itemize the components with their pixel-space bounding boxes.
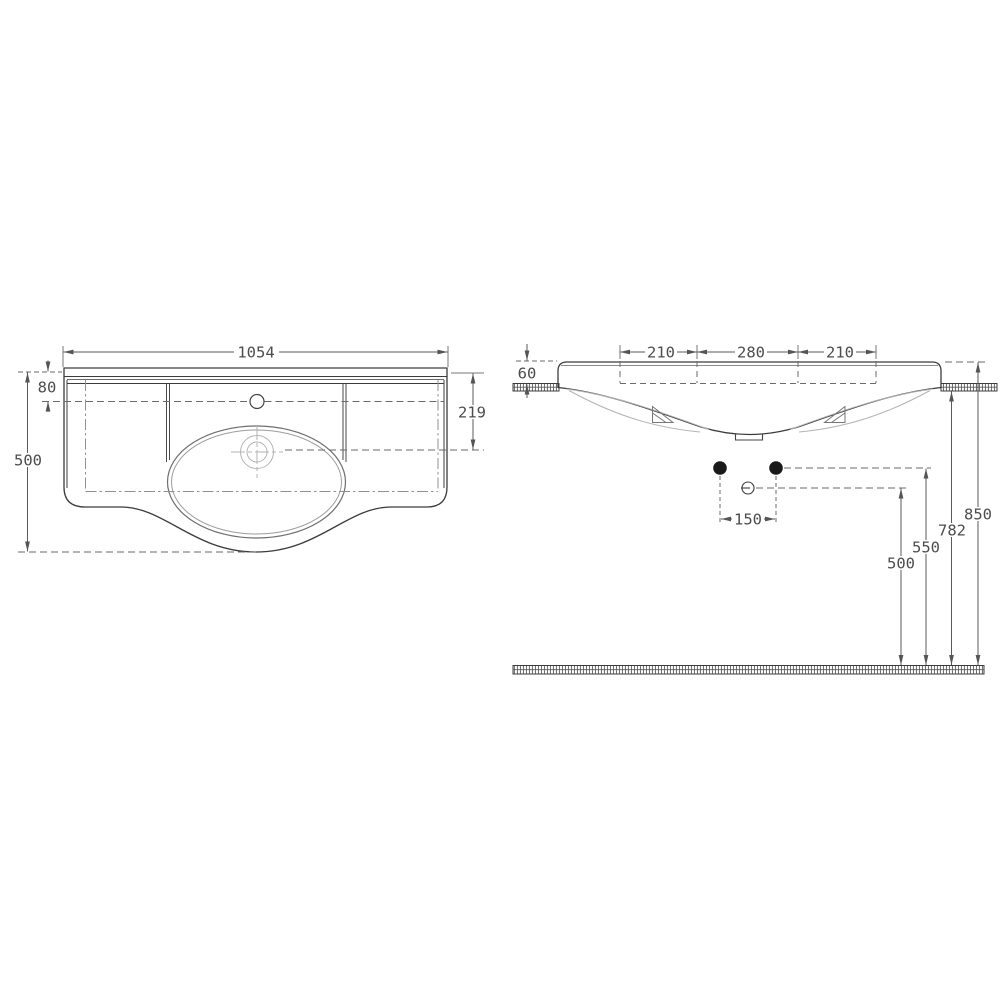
dim-label-210-right: 210 bbox=[826, 344, 854, 362]
dim-label-280: 280 bbox=[737, 344, 765, 362]
fixing-hole-left bbox=[713, 461, 727, 475]
plan-view: 1054 80 500 219 bbox=[12, 344, 489, 553]
dim-label-500-depth: 500 bbox=[14, 452, 42, 470]
dim-top-spans: 210 280 210 bbox=[620, 344, 876, 384]
dim-label-219: 219 bbox=[458, 404, 486, 422]
dim-height-top: 850 bbox=[962, 363, 994, 666]
basin-body-outline bbox=[64, 368, 447, 552]
mounting-bracket-left bbox=[653, 407, 674, 423]
dim-label-850: 850 bbox=[964, 506, 992, 524]
dim-label-1054: 1054 bbox=[237, 344, 274, 362]
dim-height-underside: 782 bbox=[936, 392, 968, 666]
dim-hole-spacing: 150 bbox=[720, 476, 776, 529]
bowl-ellipse-outer bbox=[168, 426, 346, 538]
dim-overall-depth: 500 bbox=[12, 373, 257, 553]
dim-label-60: 60 bbox=[518, 365, 537, 383]
wall-section-left bbox=[513, 384, 559, 392]
washbasin-technical-drawing: 1054 80 500 219 bbox=[0, 0, 1000, 1000]
bowl-profile bbox=[558, 388, 941, 435]
bowl-inner-curves bbox=[566, 389, 933, 432]
waste-hole-symbol bbox=[741, 482, 754, 494]
height-reference-dashes bbox=[756, 362, 985, 488]
dim-bowl-centre: 219 bbox=[451, 373, 489, 450]
dim-label-210-left: 210 bbox=[647, 344, 675, 362]
wall-section-right bbox=[941, 384, 997, 392]
dim-height-waste: 500 bbox=[885, 489, 917, 666]
dim-label-80: 80 bbox=[38, 379, 57, 397]
mounting-bracket-right bbox=[825, 407, 846, 423]
dim-back-rail: 80 bbox=[18, 361, 62, 413]
dim-label-150: 150 bbox=[734, 511, 762, 529]
waste-outlet-stub bbox=[736, 435, 763, 441]
side-elevation-view: 210 280 210 60 bbox=[513, 344, 997, 675]
dim-overall-width: 1054 bbox=[63, 344, 448, 368]
waste-drain-symbol bbox=[231, 426, 283, 478]
fixing-hole-right bbox=[769, 461, 783, 475]
dim-label-782: 782 bbox=[938, 522, 966, 540]
dim-label-500-height: 500 bbox=[887, 555, 915, 573]
floor-section bbox=[513, 666, 984, 675]
dim-label-550: 550 bbox=[912, 539, 940, 557]
tap-hole bbox=[250, 395, 264, 409]
drawing-canvas: 1054 80 500 219 bbox=[0, 0, 1000, 1000]
